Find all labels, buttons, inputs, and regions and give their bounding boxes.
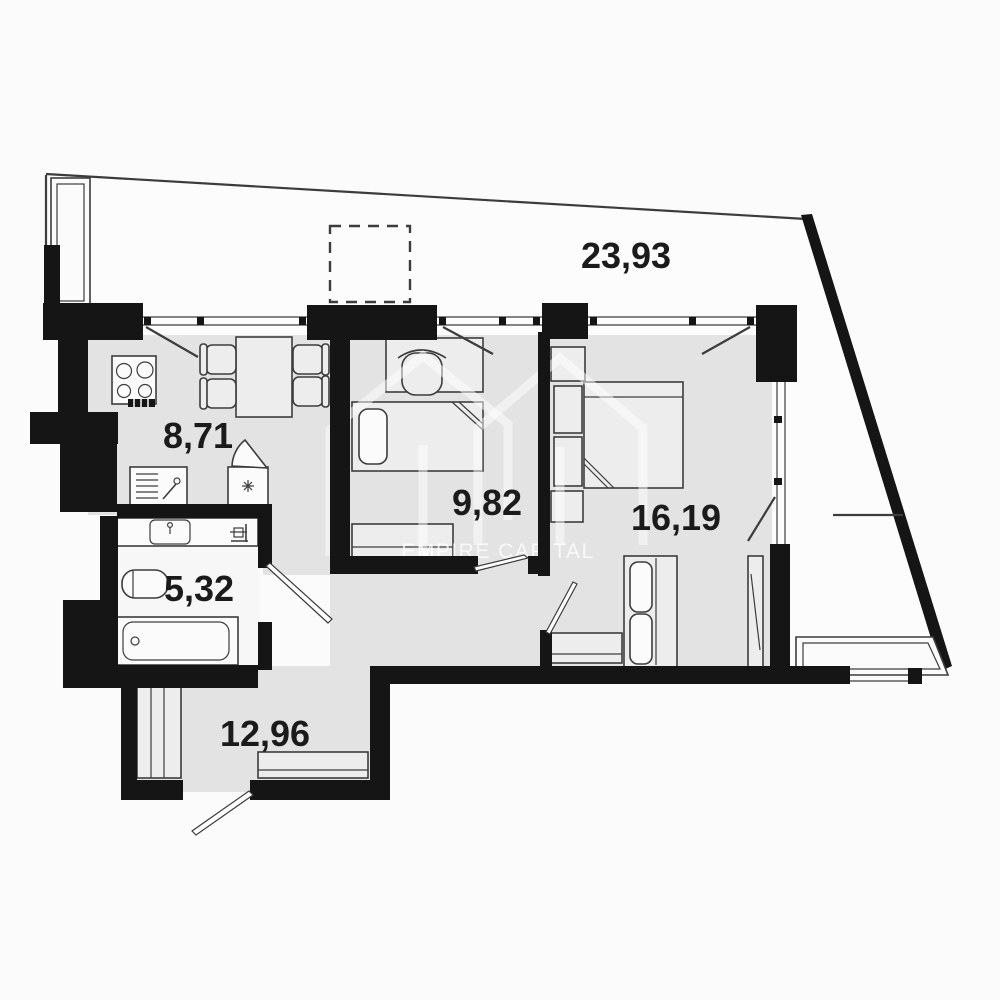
floor-plan-image: EMPIRE CAPITAL — [0, 0, 1000, 1000]
room-area-label-terrace: 23,93 — [581, 235, 671, 276]
kitchen-sink-counter-icon — [130, 467, 187, 505]
room-area-label-master-bedroom: 16,19 — [631, 497, 721, 538]
room-area-label-small-bedroom: 9,82 — [452, 482, 522, 523]
shower-unit-icon — [228, 467, 268, 505]
toilet-icon — [122, 570, 168, 598]
entrance-door-leaf — [192, 791, 253, 835]
room-area-label-hallway: 12,96 — [220, 713, 310, 754]
tv-stand-icon — [748, 556, 763, 668]
corridor-floor — [330, 558, 552, 668]
bathtub-icon — [117, 617, 238, 665]
room-area-label-bathroom: 5,32 — [164, 568, 234, 609]
room-area-label-kitchen: 8,71 — [163, 415, 233, 456]
hall-bench-icon — [258, 752, 368, 778]
sofa-icon — [624, 556, 677, 667]
wall-segment — [44, 245, 60, 307]
floor-plan: EMPIRE CAPITAL — [0, 0, 1000, 1000]
stove-icon — [112, 356, 156, 407]
double-bed-icon — [584, 382, 683, 488]
bedroom-dresser-icon — [551, 633, 622, 663]
single-bed-icon — [352, 402, 483, 471]
